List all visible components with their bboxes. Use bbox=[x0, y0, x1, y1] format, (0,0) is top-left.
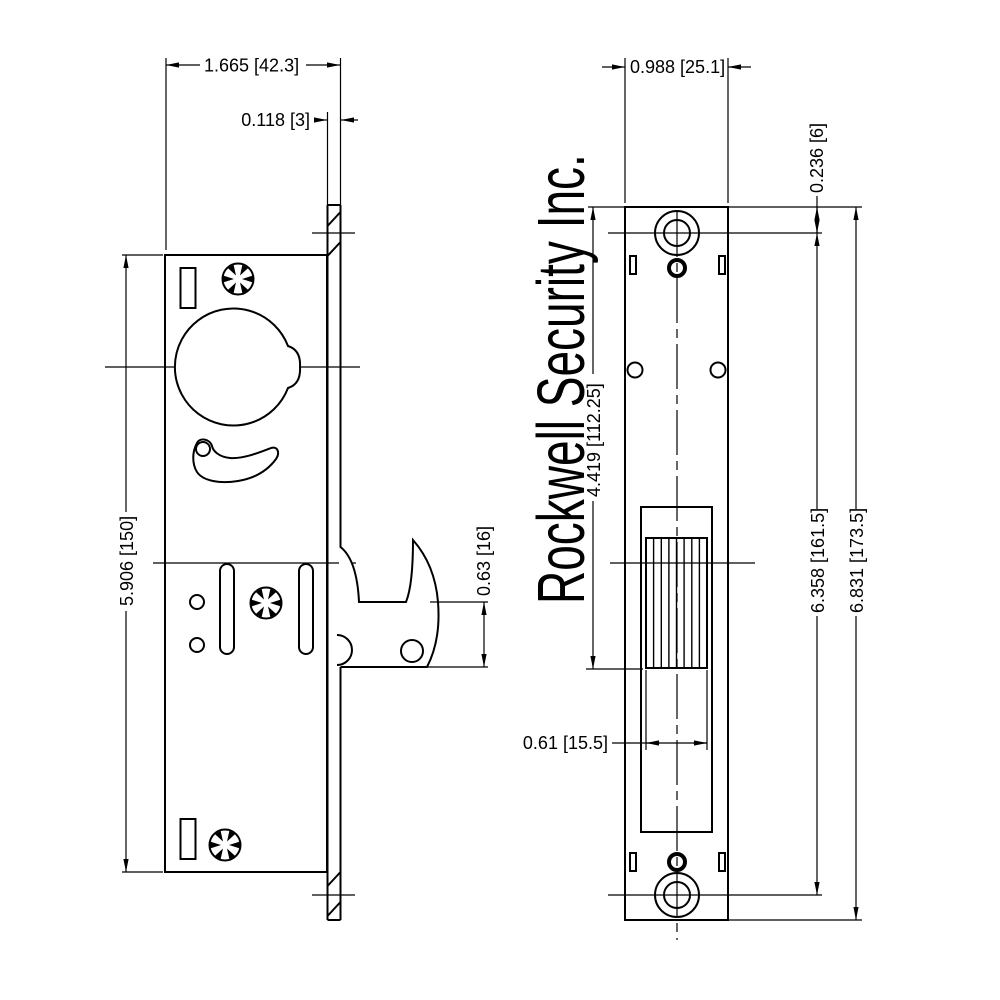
dimensions: 1.665 [42.3] 0.118 [3] 5.906 [150] 0.63 … bbox=[117, 56, 867, 921]
hook-bolt bbox=[337, 540, 439, 667]
engineering-drawing: 1.665 [42.3] 0.118 [3] 5.906 [150] 0.63 … bbox=[0, 0, 1000, 1000]
dim-body-width: 1.665 [42.3] bbox=[204, 56, 299, 76]
tab-slot bbox=[719, 853, 725, 871]
bottom-slot bbox=[181, 819, 196, 859]
screw-middle bbox=[251, 588, 282, 619]
dim-hole-spacing: 6.358 [161.5] bbox=[808, 508, 828, 613]
dim-body-height: 5.906 [150] bbox=[117, 516, 137, 606]
screw-top bbox=[223, 264, 254, 295]
small-hole-1 bbox=[190, 595, 204, 609]
tab-slot bbox=[630, 853, 636, 871]
guide-slot-right bbox=[299, 564, 313, 654]
guide-slot-left bbox=[220, 564, 234, 654]
dim-bolt-slot-width: 0.61 [15.5] bbox=[523, 733, 608, 753]
screw-bottom bbox=[210, 830, 241, 861]
countersink-side-bottom bbox=[312, 872, 355, 916]
drawing-canvas: 1.665 [42.3] 0.118 [3] 5.906 [150] 0.63 … bbox=[0, 0, 1000, 1000]
cylinder-bore bbox=[175, 309, 300, 426]
side-hole-left bbox=[628, 363, 643, 378]
dim-faceplate-width: 0.988 [25.1] bbox=[630, 57, 725, 77]
lock-body-side-view bbox=[105, 58, 439, 920]
dim-hook-depth: 0.63 [16] bbox=[474, 526, 494, 596]
countersink-side-top bbox=[312, 212, 355, 256]
dim-overall-height: 6.831 [173.5] bbox=[847, 508, 867, 613]
company-title: Rockwell Security Inc. bbox=[525, 154, 600, 604]
dim-faceplate-thickness: 0.118 [3] bbox=[241, 110, 310, 130]
lever-pivot-hole bbox=[196, 442, 210, 456]
tab-slot bbox=[719, 256, 725, 274]
small-hole-2 bbox=[190, 638, 204, 652]
top-slot bbox=[181, 268, 196, 308]
bolt-pivot-pin bbox=[401, 640, 423, 662]
dim-hole-edge-offset: 0.236 [6] bbox=[807, 123, 827, 193]
side-hole-right bbox=[711, 363, 726, 378]
tab-slot bbox=[630, 256, 636, 274]
